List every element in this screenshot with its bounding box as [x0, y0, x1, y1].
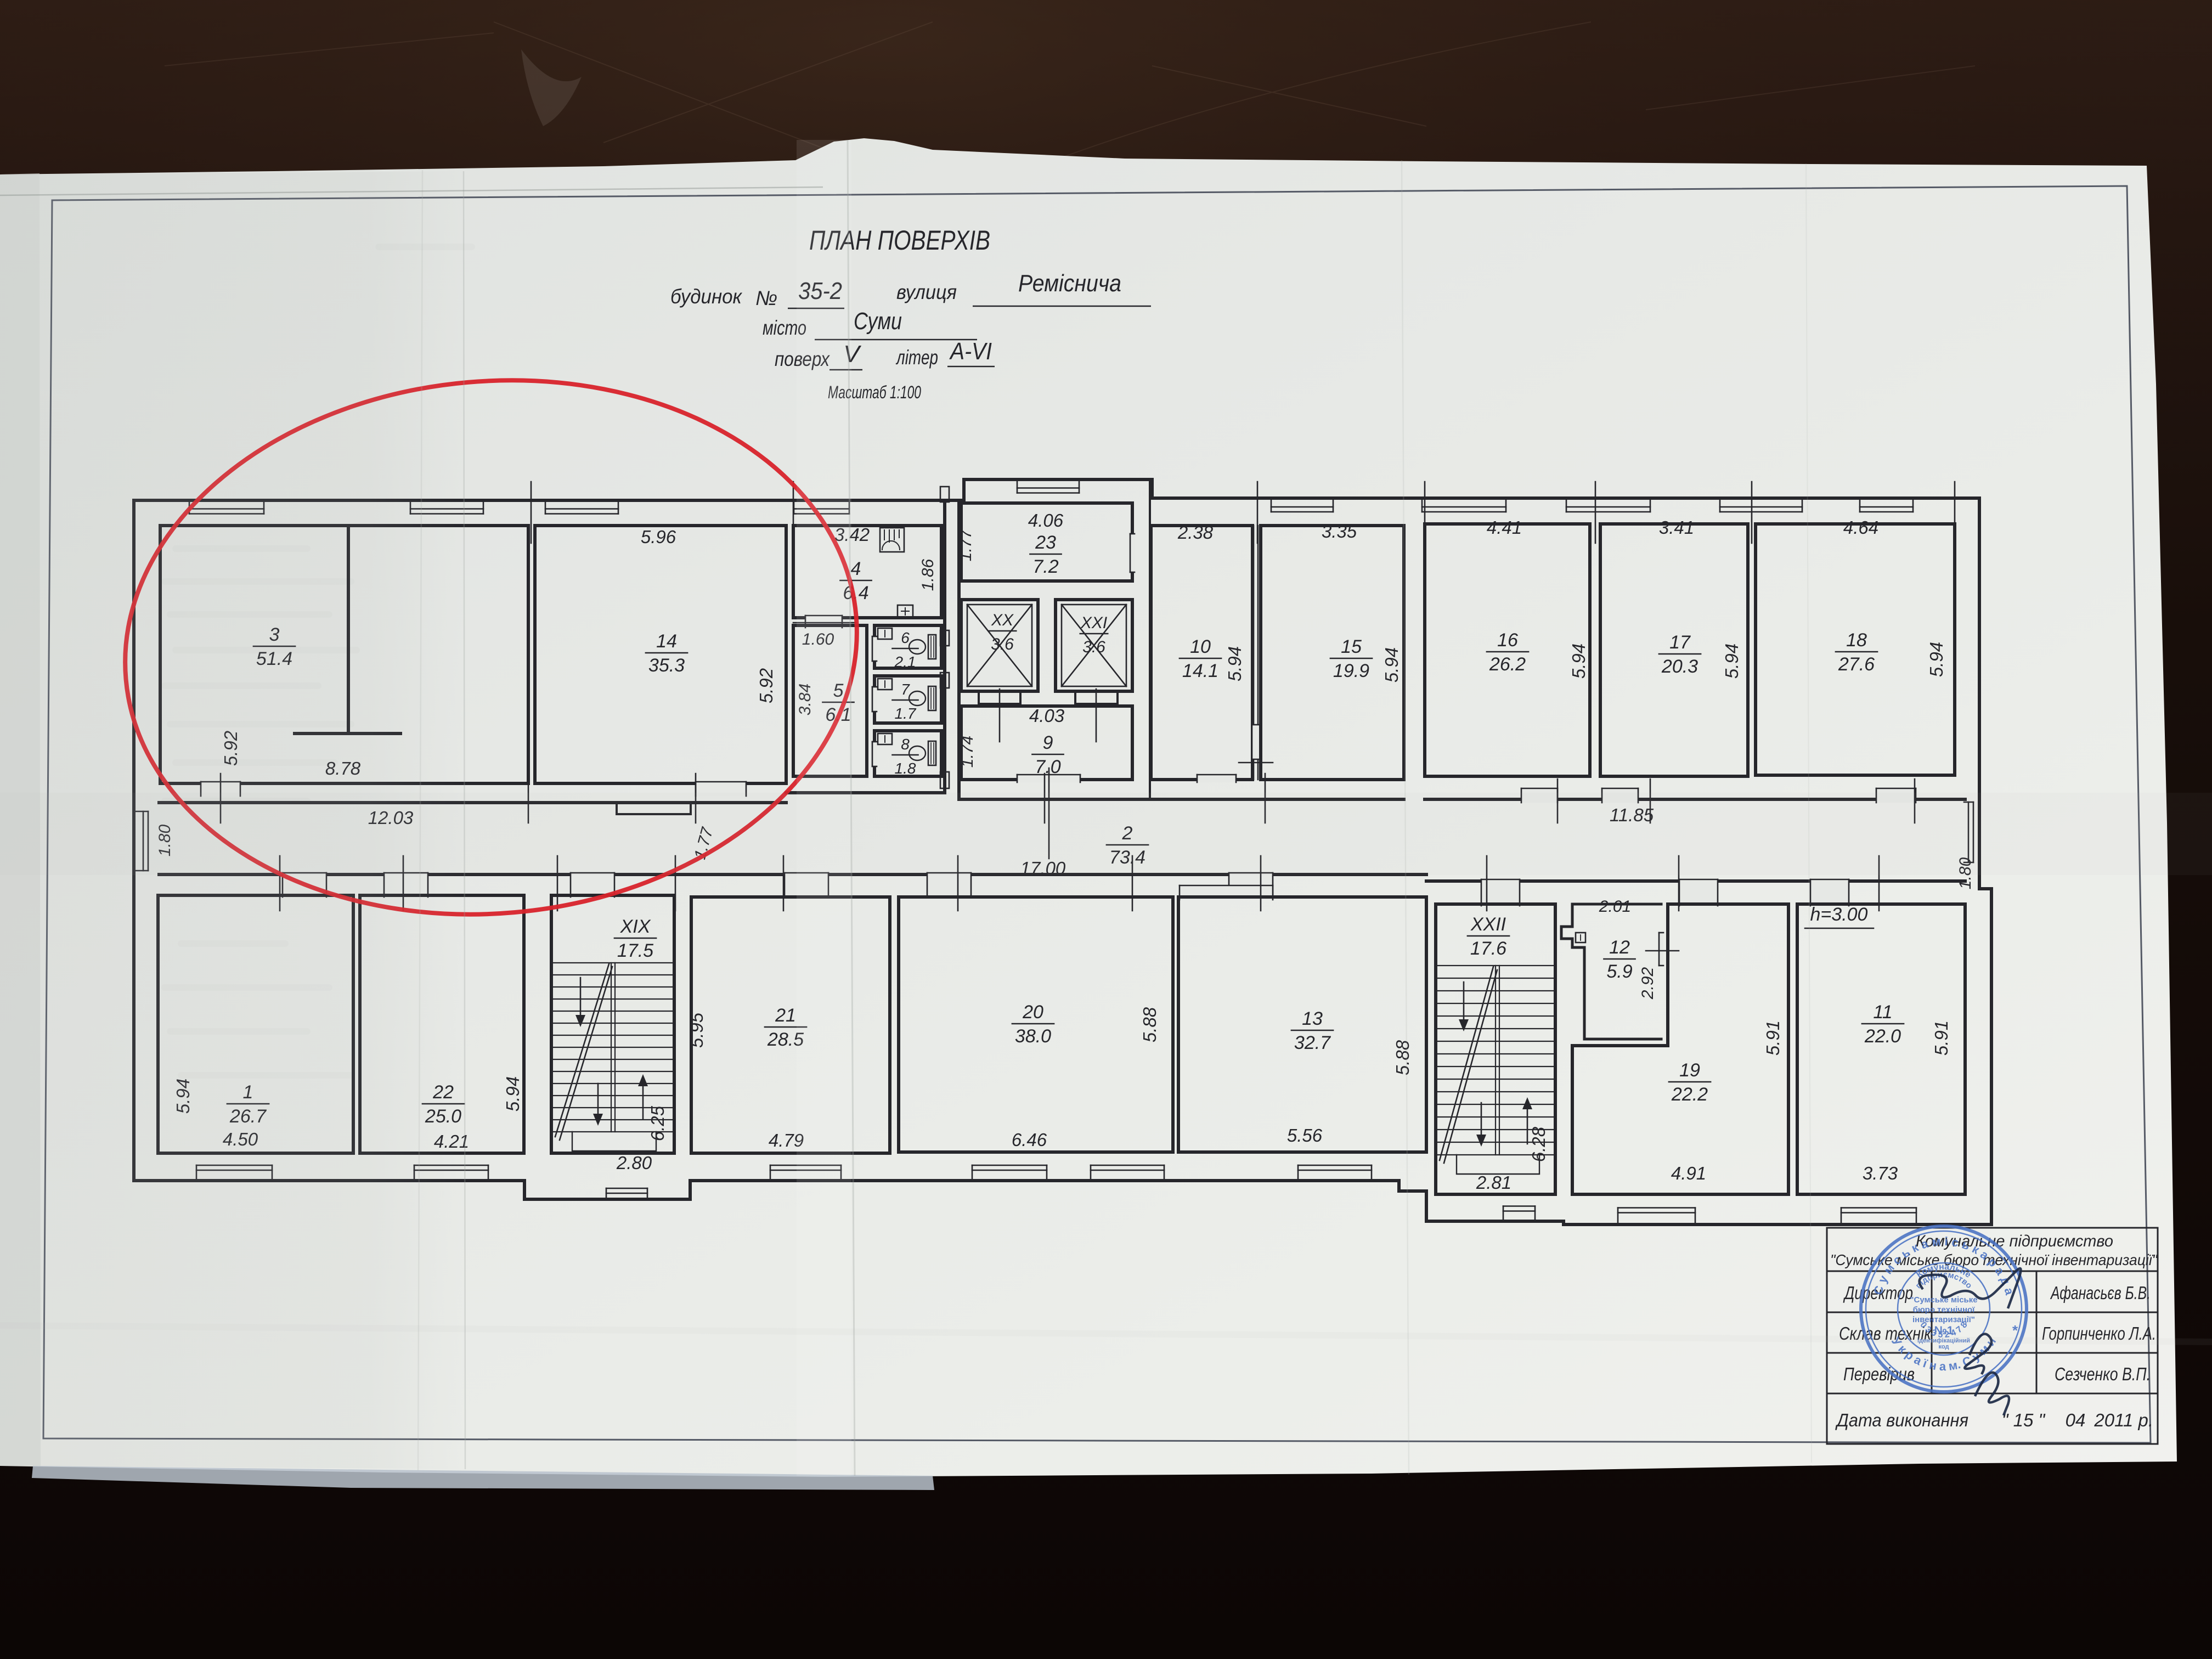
svg-text:9: 9 — [1043, 732, 1053, 753]
svg-text:11.85: 11.85 — [1610, 805, 1654, 825]
svg-text:1.80: 1.80 — [156, 824, 174, 856]
svg-text:код: код — [1939, 1344, 1949, 1350]
svg-text:4.50: 4.50 — [223, 1129, 258, 1149]
svg-text:" 15 ": " 15 " — [2002, 1410, 2046, 1430]
svg-text:5.9: 5.9 — [1606, 961, 1632, 982]
svg-text:4.64: 4.64 — [1843, 517, 1878, 538]
svg-text:5.88: 5.88 — [1392, 1040, 1413, 1075]
svg-text:6.46: 6.46 — [1012, 1130, 1047, 1150]
svg-text:22.2: 22.2 — [1671, 1084, 1708, 1105]
svg-text:2.81: 2.81 — [1476, 1172, 1511, 1193]
svg-text:25.0: 25.0 — [425, 1106, 461, 1127]
svg-text:будинок: будинок — [670, 285, 742, 308]
svg-text:4.91: 4.91 — [1671, 1163, 1706, 1183]
svg-text:3.73: 3.73 — [1863, 1163, 1898, 1183]
svg-text:2: 2 — [1122, 823, 1133, 844]
svg-text:19.9: 19.9 — [1333, 661, 1369, 681]
svg-text:4.79: 4.79 — [769, 1130, 804, 1150]
svg-text:38.0: 38.0 — [1015, 1026, 1051, 1047]
svg-text:Масштаб 1:100: Масштаб 1:100 — [828, 382, 921, 402]
svg-text:26.7: 26.7 — [229, 1106, 267, 1127]
svg-text:73.4: 73.4 — [1109, 847, 1145, 868]
svg-text:h=3.00: h=3.00 — [1810, 904, 1868, 925]
svg-text:23: 23 — [1035, 532, 1056, 553]
svg-text:3: 3 — [269, 624, 280, 645]
svg-text:літер: літер — [895, 346, 938, 369]
svg-text:4.06: 4.06 — [1028, 510, 1064, 531]
svg-text:18: 18 — [1846, 630, 1867, 651]
svg-text:20: 20 — [1022, 1002, 1043, 1023]
svg-text:5.94: 5.94 — [1568, 644, 1589, 679]
svg-text:5.94: 5.94 — [1722, 644, 1742, 679]
svg-text:5.95: 5.95 — [686, 1012, 707, 1048]
svg-text:вулиця: вулиця — [896, 281, 957, 303]
svg-text:17: 17 — [1669, 632, 1691, 653]
svg-text:14: 14 — [656, 631, 677, 652]
svg-text:35.3: 35.3 — [648, 655, 685, 676]
svg-text:Горпинченко Л.А.: Горпинченко Л.А. — [2042, 1323, 2156, 1344]
svg-text:32.7: 32.7 — [1294, 1032, 1331, 1053]
svg-text:35-2: 35-2 — [798, 278, 842, 304]
svg-text:1.8: 1.8 — [895, 760, 916, 777]
svg-text:5.91: 5.91 — [1763, 1020, 1783, 1056]
svg-text:Реміснича: Реміснича — [1018, 270, 1121, 297]
svg-text:1.80: 1.80 — [1956, 857, 1974, 889]
svg-text:8.78: 8.78 — [325, 758, 361, 778]
svg-text:12: 12 — [1609, 937, 1630, 958]
svg-text:5.94: 5.94 — [503, 1076, 523, 1111]
svg-text:4.41: 4.41 — [1487, 517, 1522, 538]
svg-text:17.6: 17.6 — [1470, 938, 1506, 959]
svg-text:4.03: 4.03 — [1029, 706, 1065, 726]
svg-text:3.42: 3.42 — [834, 524, 870, 545]
svg-text:5.94: 5.94 — [173, 1079, 193, 1114]
svg-text:5.94: 5.94 — [1926, 642, 1946, 677]
svg-text:1: 1 — [243, 1082, 253, 1103]
svg-text:5.94: 5.94 — [1224, 646, 1245, 681]
svg-text:6.28: 6.28 — [1528, 1126, 1549, 1162]
svg-text:13: 13 — [1302, 1008, 1323, 1029]
svg-text:*: * — [2012, 1322, 2018, 1339]
svg-text:XXII: XXII — [1470, 914, 1506, 935]
svg-text:5: 5 — [833, 680, 844, 701]
svg-text:27.6: 27.6 — [1838, 654, 1875, 675]
svg-text:11: 11 — [1873, 1002, 1892, 1023]
svg-text:№: № — [755, 287, 777, 309]
svg-text:1.77: 1.77 — [957, 528, 975, 561]
svg-text:16: 16 — [1497, 630, 1518, 651]
svg-text:14.1: 14.1 — [1182, 661, 1218, 681]
svg-text:04: 04 — [2066, 1410, 2086, 1430]
svg-text:XXI: XXI — [1080, 614, 1107, 632]
svg-text:2011 р.: 2011 р. — [2093, 1410, 2153, 1430]
svg-text:3.35: 3.35 — [1322, 521, 1357, 541]
svg-text:3.6: 3.6 — [991, 635, 1014, 653]
svg-text:інвентаризації": інвентаризації" — [1912, 1315, 1975, 1324]
svg-text:V: V — [843, 341, 861, 368]
svg-text:4: 4 — [851, 558, 861, 579]
svg-text:26.2: 26.2 — [1489, 654, 1526, 675]
svg-text:12.03: 12.03 — [368, 808, 414, 828]
svg-text:2.01: 2.01 — [1599, 898, 1631, 916]
svg-text:2.92: 2.92 — [1639, 967, 1657, 1000]
svg-text:Суми: Суми — [854, 308, 902, 335]
svg-text:XIX: XIX — [620, 916, 651, 937]
svg-text:17.5: 17.5 — [617, 940, 653, 961]
svg-text:2.80: 2.80 — [616, 1153, 652, 1173]
svg-text:5.96: 5.96 — [641, 527, 676, 547]
svg-text:1.60: 1.60 — [802, 630, 834, 648]
svg-text:51.4: 51.4 — [256, 648, 292, 669]
svg-text:15: 15 — [1341, 636, 1362, 657]
svg-text:XX: XX — [991, 611, 1014, 629]
svg-text:5.88: 5.88 — [1139, 1007, 1160, 1042]
svg-text:Сезченко В.П.: Сезченко В.П. — [2055, 1364, 2151, 1384]
svg-text:1.7: 1.7 — [895, 705, 917, 722]
svg-text:Афанасьєв Б.В.: Афанасьєв Б.В. — [2050, 1283, 2151, 1303]
svg-text:Дата виконання: Дата виконання — [1835, 1410, 1968, 1430]
svg-text:22: 22 — [432, 1082, 454, 1103]
svg-text:5.56: 5.56 — [1287, 1125, 1323, 1145]
svg-text:А-VI: А-VI — [949, 338, 992, 365]
svg-text:3.6: 3.6 — [1082, 638, 1105, 656]
svg-text:2.1: 2.1 — [894, 653, 916, 670]
svg-text:2.38: 2.38 — [1177, 522, 1214, 543]
svg-text:поверх: поверх — [775, 348, 830, 370]
svg-text:бюро технічної: бюро технічної — [1913, 1305, 1976, 1314]
svg-text:6: 6 — [901, 629, 910, 646]
svg-text:місто: місто — [763, 317, 806, 339]
svg-text:21: 21 — [775, 1005, 796, 1026]
svg-text:19: 19 — [1679, 1060, 1700, 1081]
svg-text:5.92: 5.92 — [221, 731, 241, 766]
svg-text:28.5: 28.5 — [767, 1029, 804, 1050]
svg-text:1.86: 1.86 — [919, 558, 937, 591]
svg-text:3.84: 3.84 — [796, 684, 814, 715]
svg-text:4.21: 4.21 — [434, 1131, 469, 1152]
svg-text:7: 7 — [901, 681, 910, 698]
svg-text:22.0: 22.0 — [1864, 1026, 1901, 1047]
svg-text:5.91: 5.91 — [1931, 1020, 1951, 1056]
svg-text:ПЛАН ПОВЕРХІВ: ПЛАН ПОВЕРХІВ — [809, 225, 990, 256]
svg-text:3.41: 3.41 — [1659, 517, 1694, 538]
svg-text:6.25: 6.25 — [647, 1105, 668, 1141]
svg-text:5.92: 5.92 — [756, 668, 776, 703]
svg-text:20.3: 20.3 — [1661, 656, 1698, 677]
svg-text:10: 10 — [1190, 636, 1211, 657]
svg-text:8: 8 — [901, 736, 910, 753]
svg-text:5.94: 5.94 — [1381, 647, 1402, 682]
svg-text:7.2: 7.2 — [1032, 556, 1058, 577]
